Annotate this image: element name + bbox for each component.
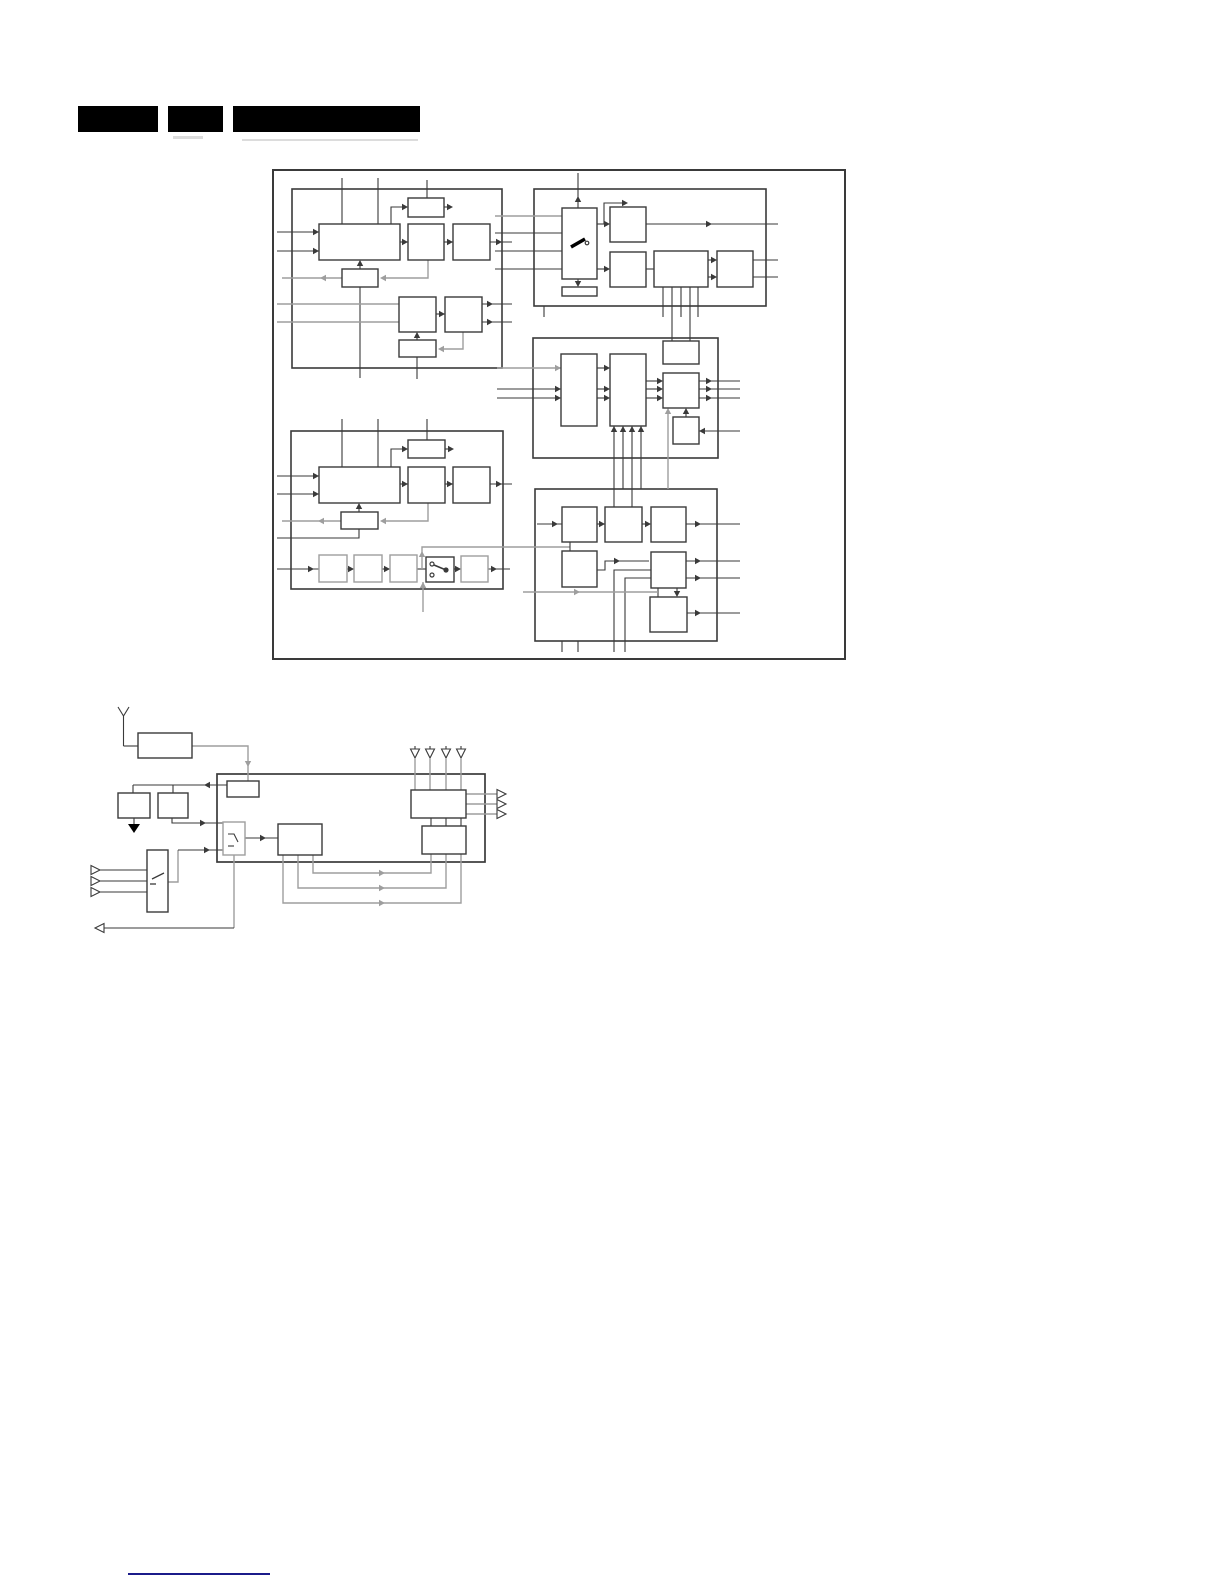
arrowhead [638,426,644,432]
boxE-top-box-1 [562,507,597,542]
arrowhead [357,260,363,266]
arrowhead [384,566,390,572]
redacted-title-block-2 [168,106,223,132]
arrowhead [204,782,210,788]
arrowhead [695,558,701,564]
arrowhead [555,395,561,401]
wire [192,746,248,781]
arrowhead [706,378,712,384]
arrowhead [313,473,319,479]
arrowhead [604,395,610,401]
boxA-right-box [453,224,490,260]
arrowhead [604,221,610,227]
connector-triangle-icon [497,800,506,809]
preamp-box [138,733,192,758]
boxE-mid-left-box [562,551,597,587]
boxE-top-box-3 [651,507,686,542]
arrowhead [420,582,426,588]
connector-triangle-icon [497,810,506,819]
boxB-top-box [610,207,646,242]
arrowhead [604,365,610,371]
arrowhead [402,481,408,487]
arrowhead [320,275,326,281]
arrowhead [657,395,663,401]
arrowhead [657,378,663,384]
connector-triangle-icon [442,749,451,758]
boxA-main-box [319,224,400,260]
wire [313,854,431,873]
boxB-mid-box [610,252,646,287]
title-shadow-1 [173,136,203,139]
arrowhead [260,835,266,841]
boxC-tall-box-2 [610,354,646,426]
rf-box [411,790,466,818]
arrowhead [496,239,502,245]
arrowhead [599,521,605,527]
connector-triangle-icon [91,866,100,875]
arrowhead [419,551,425,557]
connector-triangle-icon [497,790,506,799]
solid-arrow-icon [128,824,140,833]
arrowhead [706,395,712,401]
arrowhead [604,266,610,272]
arrowhead [438,346,444,352]
redacted-title-block-3 [233,106,420,132]
arrowhead [620,426,626,432]
arrowhead [645,521,651,527]
arrowhead [487,301,493,307]
arrowhead [455,566,461,572]
arrowhead [313,491,319,497]
arrowhead [555,386,561,392]
arrowhead [665,408,671,414]
arrowhead [491,566,497,572]
boxA-feedback-box [342,269,378,287]
wire [172,818,223,823]
boxC-right-box [663,373,699,408]
arrowhead [695,610,701,616]
boxA-top-box [408,198,444,217]
boxD-right-box [453,467,490,503]
arrowhead [379,870,385,876]
manual-page [0,0,1224,1584]
arrowhead [448,446,454,452]
arrowhead [380,518,386,524]
arrowhead [380,275,386,281]
boxB-flat-box [562,287,597,296]
arrowhead [379,885,385,891]
arrowhead [674,591,680,597]
arrowhead [447,239,453,245]
boxA-lower-box-2 [445,297,482,332]
connector-triangle-icon [91,877,100,886]
arrowhead [695,521,701,527]
boxD-mid-box [408,467,445,503]
footer-link-underline [128,1573,270,1575]
arrowhead [604,386,610,392]
boxC-top-box [663,341,699,364]
arrowhead [496,481,502,487]
arrowhead [414,332,420,338]
boxD-chain-box-5 [461,556,488,582]
arrowhead [402,446,408,452]
boxD-top-box [408,440,445,458]
antenna-icon [118,707,124,716]
arrowhead [622,200,628,206]
wire [277,529,359,538]
boxD-chain-box-2 [354,555,382,582]
left-box-2 [158,793,188,818]
ic-mid-box [278,824,322,855]
connector-triangle-icon [426,749,435,758]
title-shadow-2 [242,139,418,141]
arrowhead [402,204,408,210]
arrowhead [657,386,663,392]
boxD-main-box [319,467,400,503]
arrowhead [555,365,561,371]
boxE-bottom-box [650,597,687,632]
boxD-chain-box-3 [390,555,417,582]
boxC-small-box [673,417,699,444]
boxD-feedback-box [341,512,378,529]
wire [614,570,651,652]
arrowhead [313,229,319,235]
arrowhead [706,221,712,227]
arrowhead [629,426,635,432]
boxC-tall-box-1 [561,354,597,426]
wire [382,260,428,278]
connector-triangle-icon [91,888,100,897]
arrowhead [711,274,717,280]
wire [168,850,178,882]
arrowhead [575,281,581,287]
arrowhead [356,503,362,509]
arrowhead [313,248,319,254]
boxA-lower-small-box [399,340,436,357]
connector-triangle-icon [95,924,104,933]
left-box-1 [118,793,150,818]
arrowhead [245,761,251,767]
selector-box [147,850,168,912]
arrowhead [200,820,206,826]
arrowhead [402,239,408,245]
ic-inner-top-box [227,781,259,797]
arrowhead [574,589,580,595]
boxD-switch-box [426,557,454,582]
boxD-chain-box-1 [319,555,347,582]
arrowhead [447,204,453,210]
arrowhead [487,319,493,325]
wire [298,854,446,888]
arrowhead [575,196,581,202]
connector-triangle-icon [411,749,420,758]
boxB-wide-box [654,251,708,287]
arrowhead [695,575,701,581]
boxE-mid-right-box [651,552,686,588]
wire [382,503,428,521]
arrowhead [204,847,210,853]
arrowhead [318,518,324,524]
arrowhead [683,408,689,414]
boxE-top-box-2 [605,507,642,542]
connector-triangle-icon [457,749,466,758]
arrowhead [699,428,705,434]
wire [597,561,649,570]
arrowhead [348,566,354,572]
arrowhead [552,521,558,527]
ic-lower-right-box [422,826,466,854]
arrowhead [447,481,453,487]
arrowhead [711,257,717,263]
antenna-icon [124,707,130,716]
arrowhead [379,900,385,906]
arrowhead [614,558,620,564]
arrowhead [308,566,314,572]
boxB-right-box [717,251,753,287]
boxA-mid-box [408,224,444,260]
arrowhead [439,311,445,317]
arrowhead [611,426,617,432]
boxA-lower-box-1 [399,297,436,332]
schematic-canvas [0,0,1224,1584]
arrowhead [706,386,712,392]
ic-switch-box [223,822,245,855]
redacted-title-block-1 [78,106,158,132]
